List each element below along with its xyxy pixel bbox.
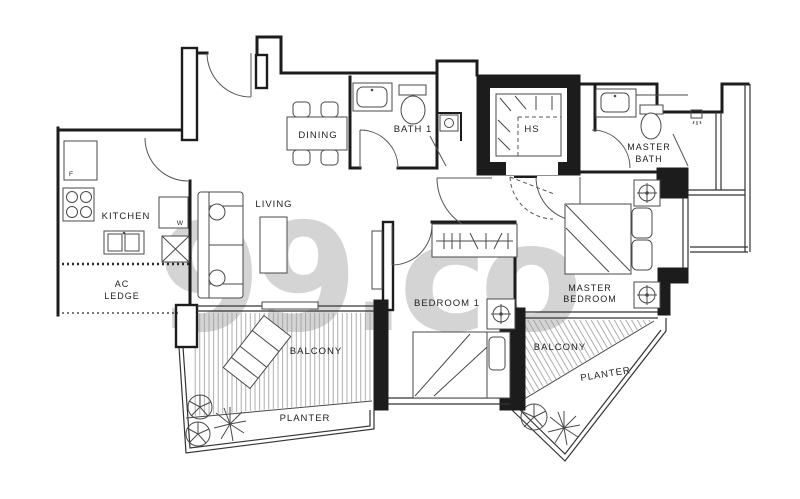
- bath1-sink: [353, 83, 392, 111]
- washer-label: W: [177, 220, 184, 227]
- dining: DINING: [287, 102, 347, 165]
- tv-console: [372, 231, 382, 289]
- shower-ledge-line: [688, 190, 745, 195]
- master-side-window: [683, 198, 688, 268]
- facade-ledge-bottom: [690, 247, 748, 252]
- hs-door-opening: [506, 162, 558, 175]
- shower-door: [673, 134, 688, 166]
- bedroom1-label: BEDROOM 1: [414, 298, 480, 309]
- pillow: [632, 240, 652, 270]
- hs-label: HS: [524, 124, 539, 135]
- master-bath-sink: [596, 89, 636, 117]
- window-pillar-3: [657, 168, 688, 198]
- balcony-right-label: BALCONY: [534, 342, 586, 353]
- sofa: [198, 192, 243, 298]
- balcony-left: BALCONY PLANTER: [179, 313, 374, 453]
- pillow: [489, 337, 505, 370]
- facade-ledge-right: [745, 84, 750, 252]
- planter-left-label: PLANTER: [280, 413, 331, 424]
- pillow: [632, 208, 652, 238]
- bedroom1-window: [388, 398, 510, 404]
- bed: [565, 204, 652, 274]
- master-bedroom: MASTER BEDROOM: [563, 180, 660, 308]
- ac-ledge-label-1: AC: [115, 279, 130, 289]
- entrance-door: [207, 53, 251, 97]
- master-bath: MASTER BATH: [596, 89, 702, 164]
- toilet-icon: [399, 85, 426, 124]
- living-label: LIVING: [255, 199, 292, 210]
- ac-ledge-label-2: LEDGE: [104, 291, 140, 301]
- nightstand-lamp-icon: [487, 299, 515, 329]
- window-pillar-4: [658, 268, 688, 315]
- ac-unit-icon: [162, 236, 189, 262]
- floorplan-page: 99.co BALCONY PLANTER: [0, 0, 800, 499]
- fridge-label: F: [69, 171, 73, 178]
- planter-right-label: PLANTER: [580, 365, 632, 384]
- nightstand-lamp-icon: [634, 282, 660, 308]
- kitchen-label: KITCHEN: [102, 211, 151, 222]
- master-bath-door: [592, 130, 630, 168]
- bath1: BATH 1: [353, 83, 458, 135]
- kitchen-sink: [104, 231, 144, 254]
- wardrobe: [432, 224, 517, 257]
- master-bedroom-label-1: MASTER: [568, 283, 612, 293]
- master-bath-label-2: BATH: [635, 154, 662, 164]
- stove-icon: [63, 188, 94, 221]
- floorplan-canvas: 99.co BALCONY PLANTER: [0, 0, 800, 499]
- master-bath-label-1: MASTER: [627, 142, 671, 152]
- balcony-right: BALCONY PLANTER: [512, 318, 666, 461]
- master-bedroom-label-2: BEDROOM: [563, 294, 617, 304]
- sliding-panel: [262, 302, 318, 309]
- window-pillar-1: [374, 300, 388, 410]
- kitchen-door: [145, 138, 188, 181]
- entrance-pillar: [182, 48, 197, 140]
- toilet-icon: [640, 105, 663, 139]
- coffee-table: [260, 217, 287, 273]
- bed: [413, 332, 510, 398]
- corridor-basin: [440, 115, 458, 131]
- balcony-left-label: BALCONY: [290, 346, 342, 357]
- balcony-left-decking: [194, 313, 374, 416]
- nightstand-lamp-icon: [634, 180, 660, 206]
- foyer-jamb: [256, 55, 267, 88]
- bath1-door: [360, 130, 398, 168]
- balcony-pillar-left: [176, 305, 197, 347]
- bath1-label: BATH 1: [394, 124, 433, 135]
- balcony-right-decking: [514, 320, 654, 404]
- washer: W: [159, 197, 188, 228]
- shower-ledge-side: [716, 112, 721, 190]
- dining-label: DINING: [298, 130, 337, 141]
